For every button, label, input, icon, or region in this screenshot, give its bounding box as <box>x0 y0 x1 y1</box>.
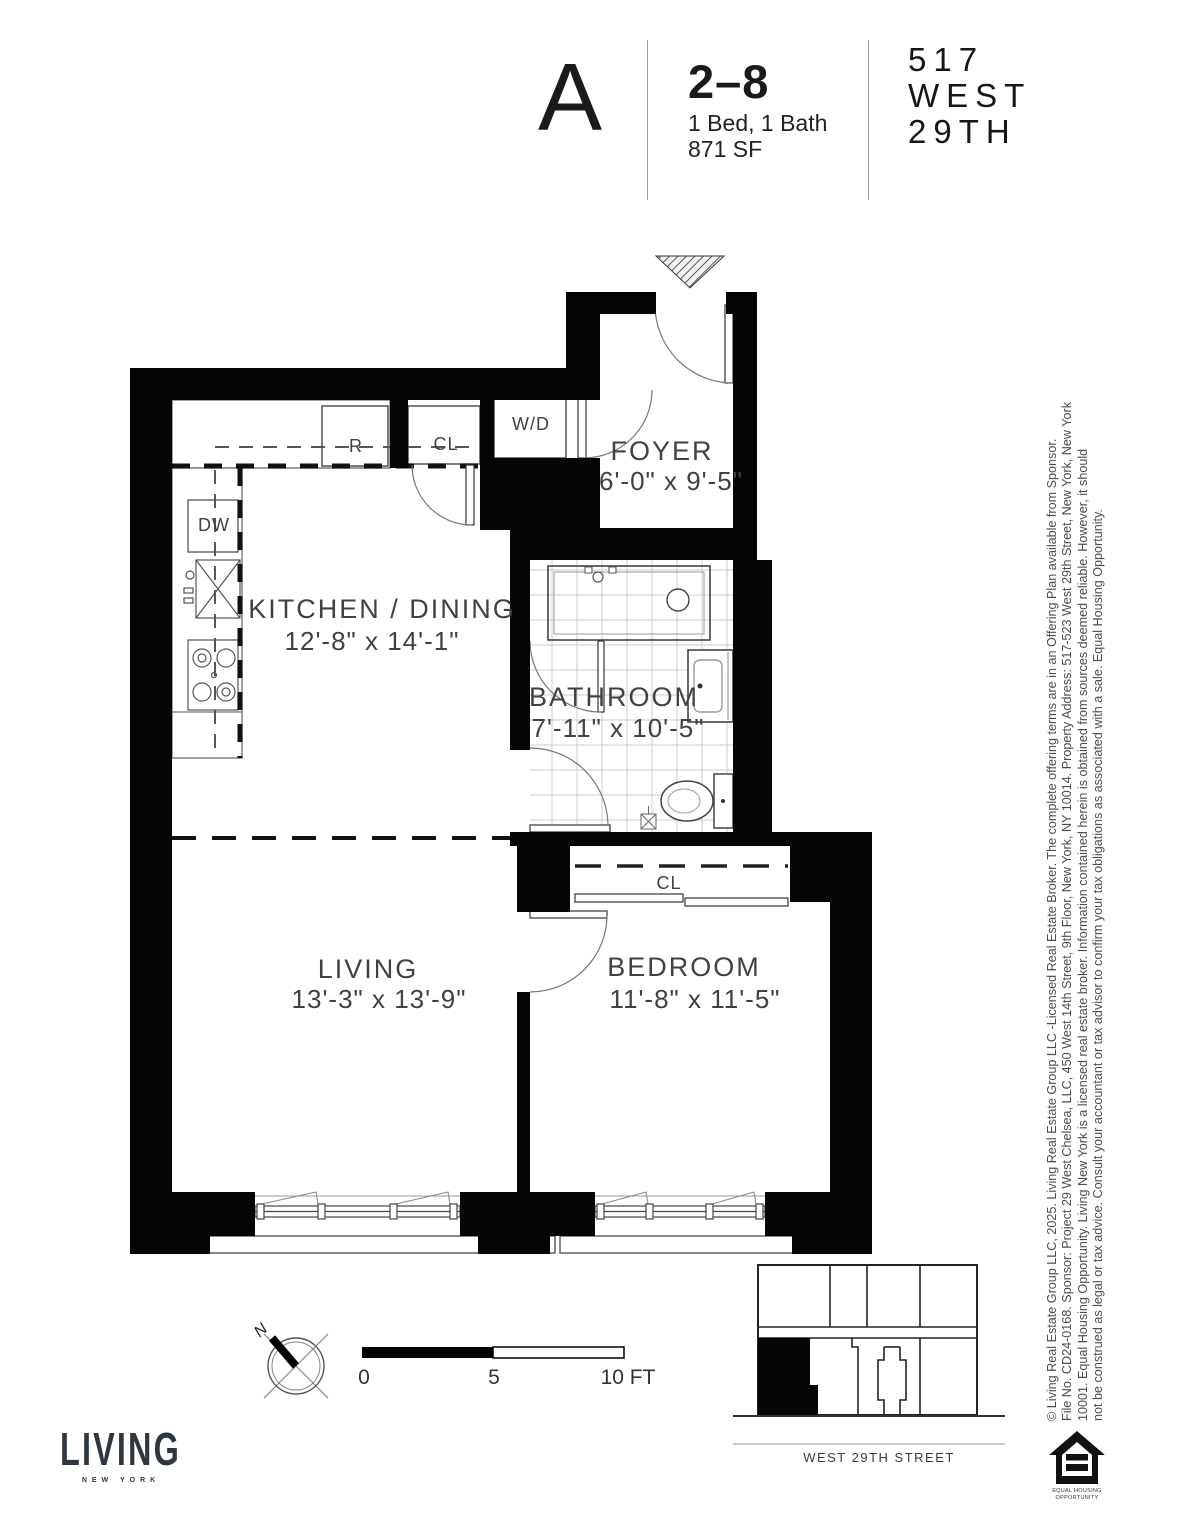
key-plan: WEST 29TH STREET <box>733 1265 1005 1465</box>
kitchen-closet-label: CL <box>433 434 458 454</box>
entry-door-leaf <box>725 305 733 383</box>
living-label: LIVING <box>318 954 419 984</box>
kitchen-counter-top <box>172 398 566 468</box>
living-window <box>255 1192 460 1219</box>
disclaimer-line3: 10001. Equal Housing Opportunity. Living… <box>1076 345 1091 1421</box>
floorplan-page: A 2–8 1 Bed, 1 Bath 871 SF 517 WEST 29TH <box>0 0 1186 1536</box>
kitchen-closet-door-arc <box>412 465 472 525</box>
legal-disclaimer: © Living Real Estate Group LLC, 2025. Li… <box>1045 345 1107 1421</box>
foyer-dims: 6'-0" x 9'-5" <box>599 466 743 496</box>
closet-slider-1 <box>575 894 683 902</box>
brand-logo-sub: NEW YORK <box>60 1477 182 1484</box>
bathroom-door2-leaf <box>530 825 610 832</box>
equal-housing-icon: EQUAL HOUSING OPPORTUNITY <box>1049 1431 1105 1501</box>
wd-label: W/D <box>512 414 550 434</box>
refrigerator-label: R <box>349 436 363 456</box>
scale-bar: 0 5 10 FT <box>358 1347 655 1389</box>
eho-text-line1: EQUAL HOUSING <box>1052 1488 1102 1494</box>
stove <box>188 640 238 710</box>
dishwasher-label: DW <box>198 515 230 535</box>
bedroom-window <box>595 1192 765 1219</box>
bedroom-label: BEDROOM <box>607 952 761 982</box>
bathtub <box>548 566 710 640</box>
bathroom-dims: 7'-11" x 10'-5" <box>532 713 705 743</box>
floor-drain-icon <box>641 806 656 829</box>
kitchen-dims: 12'-8" x 14'-1" <box>285 626 460 656</box>
kitchen-closet-door-leaf <box>466 465 474 525</box>
bedroom-dims: 11'-8" x 11'-5" <box>609 984 780 1014</box>
disclaimer-line2: File No. CD24-0168. Sponsor: Project 29 … <box>1060 345 1075 1421</box>
bedroom-door-leaf <box>530 911 607 918</box>
eho-text-line2: OPPORTUNITY <box>1056 1495 1099 1501</box>
bathroom-label: BATHROOM <box>529 682 699 712</box>
entry-arrow-icon <box>656 256 724 288</box>
key-plan-unit-highlight <box>758 1338 818 1415</box>
scale-ten: 10 FT <box>601 1366 656 1389</box>
bathroom-door2-arc <box>530 748 608 826</box>
scale-zero: 0 <box>358 1366 370 1389</box>
compass-icon: N <box>251 1320 328 1398</box>
brand-logo-word: LIVING <box>60 1426 154 1472</box>
street-label: WEST 29TH STREET <box>803 1450 955 1465</box>
kitchen-label: KITCHEN / DINING <box>248 594 516 624</box>
floor-plan-figure: FOYER 6'-0" x 9'-5" KITCHEN / DINING 12'… <box>0 0 1186 1536</box>
bedroom-closet-label: CL <box>656 873 681 893</box>
disclaimer-line1: © Living Real Estate Group LLC, 2025. Li… <box>1045 345 1060 1421</box>
brand-logo: LIVING NEW YORK <box>60 1426 190 1484</box>
entry-door-arc <box>655 305 733 383</box>
living-dims: 13'-3" x 13'-9" <box>292 984 467 1014</box>
closet-slider-2 <box>685 898 788 906</box>
scale-five: 5 <box>488 1366 500 1389</box>
bedroom-door-arc <box>530 915 607 992</box>
disclaimer-line4: not be construed as legal or tax advice.… <box>1091 345 1106 1421</box>
foyer-label: FOYER <box>610 436 713 466</box>
